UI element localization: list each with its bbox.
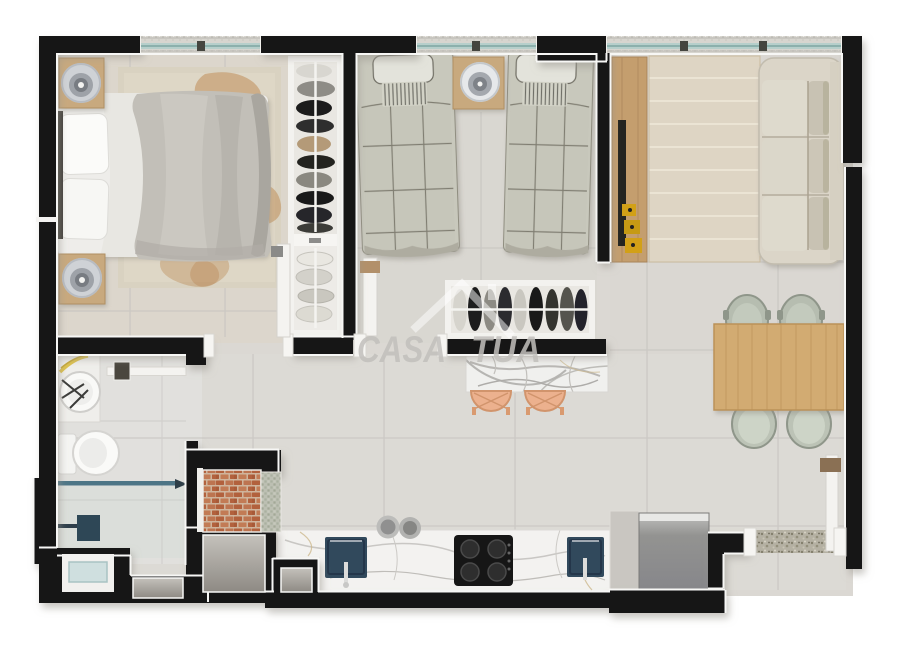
svg-text:CASA: CASA <box>357 329 446 370</box>
svg-text:TUA: TUA <box>471 329 541 370</box>
